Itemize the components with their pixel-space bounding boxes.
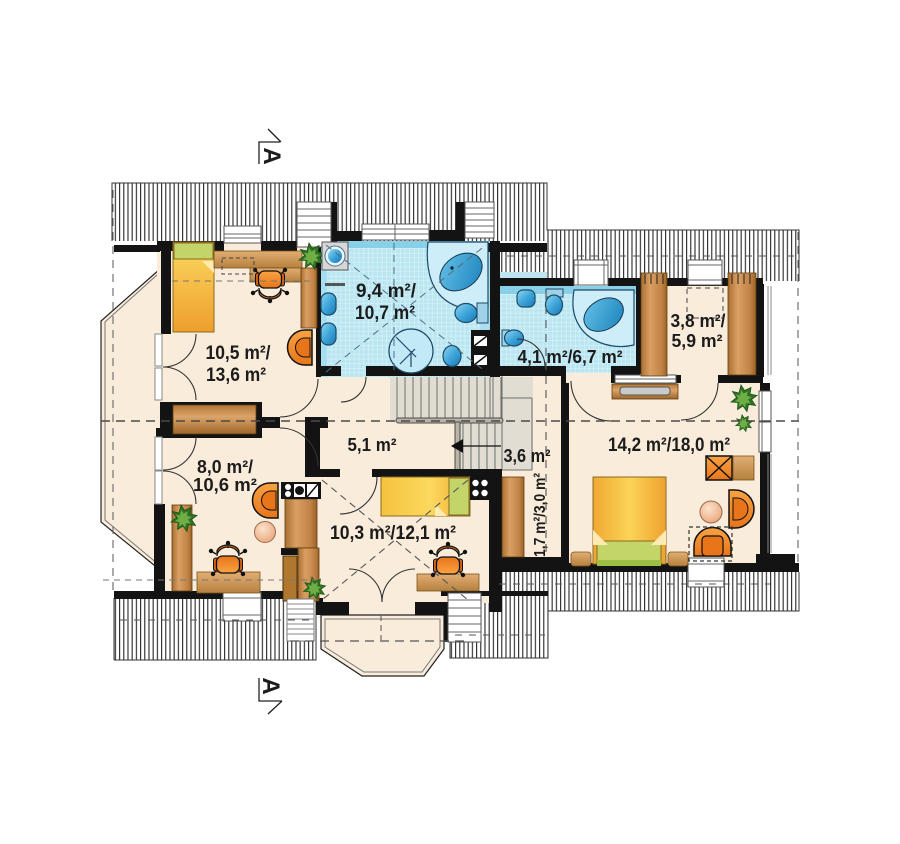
svg-text:4,1 m²/6,7 m²: 4,1 m²/6,7 m² <box>518 347 623 367</box>
svg-text:10,5 m²/: 10,5 m²/ <box>206 342 272 364</box>
svg-text:10,3 m²/12,1 m²: 10,3 m²/12,1 m² <box>330 522 456 544</box>
svg-text:A: A <box>258 147 285 164</box>
svg-text:A: A <box>257 677 284 694</box>
svg-text:9,4 m²/: 9,4 m²/ <box>356 280 417 302</box>
svg-text:13,6 m²: 13,6 m² <box>206 364 266 386</box>
svg-text:1,7 m²/3,0 m²: 1,7 m²/3,0 m² <box>532 473 549 557</box>
svg-text:10,6 m²: 10,6 m² <box>193 475 257 495</box>
svg-text:3,8 m²/: 3,8 m²/ <box>671 311 726 331</box>
svg-text:14,2 m²/18,0 m²: 14,2 m²/18,0 m² <box>608 434 730 456</box>
svg-text:5,1 m²: 5,1 m² <box>348 435 397 455</box>
svg-text:5,9 m²: 5,9 m² <box>672 331 723 351</box>
svg-text:10,7 m²: 10,7 m² <box>355 302 415 324</box>
svg-text:3,6 m²: 3,6 m² <box>504 446 551 466</box>
svg-text:8,0 m²/: 8,0 m²/ <box>197 457 253 477</box>
